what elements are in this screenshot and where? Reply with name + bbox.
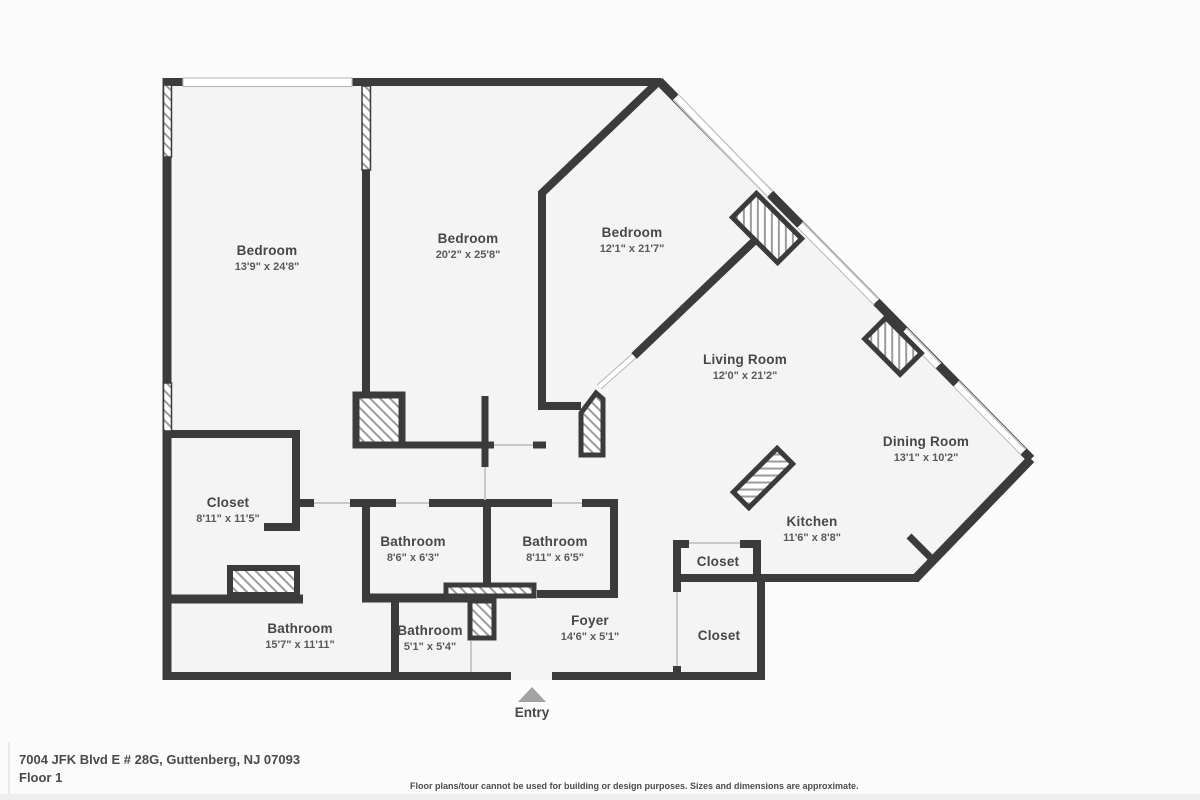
room-dims: 12'1" x 21'7" xyxy=(600,243,665,255)
room-name: Foyer xyxy=(571,613,609,628)
room-label-closet-bottom: Closet xyxy=(698,628,741,643)
room-name: Closet xyxy=(698,628,741,643)
footer-bottom-strip xyxy=(0,794,1200,800)
wall-hatch-bedroom-divider xyxy=(362,86,371,170)
room-dims: 20'2" x 25'8" xyxy=(436,249,501,261)
room-dims: 12'0" x 21'2" xyxy=(713,370,778,382)
room-dims: 5'1" x 5'4" xyxy=(404,641,456,653)
room-dims: 13'1" x 10'2" xyxy=(894,452,959,464)
room-name: Bathroom xyxy=(380,534,445,549)
window-top xyxy=(183,78,352,87)
room-dims: 8'6" x 6'3" xyxy=(387,552,439,564)
room-dims: 8'11" x 11'5" xyxy=(196,513,259,525)
wall-hatch-left-upper xyxy=(164,85,172,157)
room-name: Dining Room xyxy=(883,434,969,449)
room-dims: 15'7" x 11'11" xyxy=(265,639,335,651)
room-name: Bedroom xyxy=(237,243,298,258)
room-name: Living Room xyxy=(703,352,787,367)
room-dims: 8'11" x 6'5" xyxy=(526,552,584,564)
entry-label: Entry xyxy=(515,705,550,720)
room-name: Bedroom xyxy=(602,225,663,240)
room-dims: 11'6" x 8'8" xyxy=(783,532,841,544)
floorplan-canvas: Bedroom 13'9" x 24'8" Bedroom 20'2" x 25… xyxy=(0,0,1200,800)
room-name: Bathroom xyxy=(267,621,332,636)
room-dims: 13'9" x 24'8" xyxy=(235,261,300,273)
shaft-foyer-bar xyxy=(470,601,494,638)
footer-address: 7004 JFK Blvd E # 28G, Guttenberg, NJ 07… xyxy=(19,752,300,767)
footer-floor: Floor 1 xyxy=(19,770,62,785)
room-name: Closet xyxy=(207,495,250,510)
shaft-bathroom-bar xyxy=(446,585,534,596)
wall-hatch-left-lower xyxy=(164,383,172,431)
room-name: Bedroom xyxy=(438,231,499,246)
room-name: Bathroom xyxy=(397,623,462,638)
shaft-closet xyxy=(230,568,297,595)
footer-disclaimer: Floor plans/tour cannot be used for buil… xyxy=(410,781,859,791)
shaft-hallway xyxy=(356,395,402,445)
room-name: Closet xyxy=(697,554,740,569)
floorplan-page: Bedroom 13'9" x 24'8" Bedroom 20'2" x 25… xyxy=(0,0,1200,800)
room-name: Bathroom xyxy=(522,534,587,549)
room-label-closet-top: Closet xyxy=(697,554,740,569)
room-name: Kitchen xyxy=(787,514,838,529)
room-dims: 14'6" x 5'1" xyxy=(561,631,619,643)
